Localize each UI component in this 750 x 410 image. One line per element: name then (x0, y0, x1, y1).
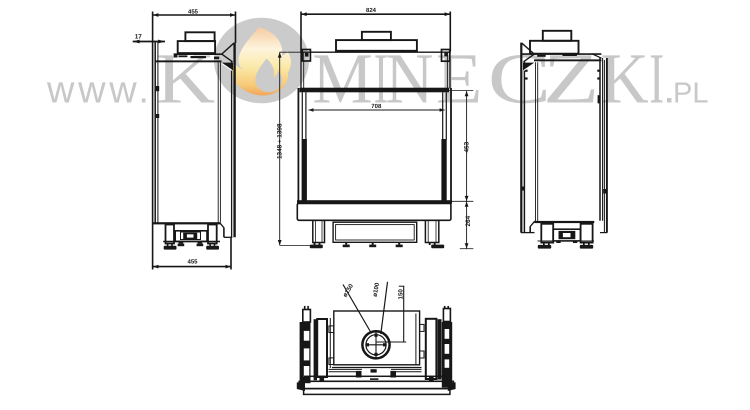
svg-text:264: 264 (465, 215, 472, 226)
svg-text:708: 708 (371, 103, 382, 110)
svg-text:K: K (156, 39, 215, 119)
svg-text:17: 17 (135, 34, 143, 41)
svg-text:150: 150 (397, 289, 404, 300)
svg-text:PL: PL (673, 78, 708, 110)
svg-text:455: 455 (188, 8, 199, 15)
svg-text:www.: www. (46, 70, 153, 112)
svg-text:824: 824 (366, 7, 377, 14)
svg-text:453: 453 (463, 141, 470, 152)
svg-text:I: I (649, 39, 664, 119)
svg-text:455: 455 (188, 259, 199, 266)
svg-text:C: C (488, 39, 551, 119)
svg-text:1348 ÷ 1398: 1348 ÷ 1398 (277, 123, 284, 159)
svg-text:Z: Z (543, 39, 599, 119)
